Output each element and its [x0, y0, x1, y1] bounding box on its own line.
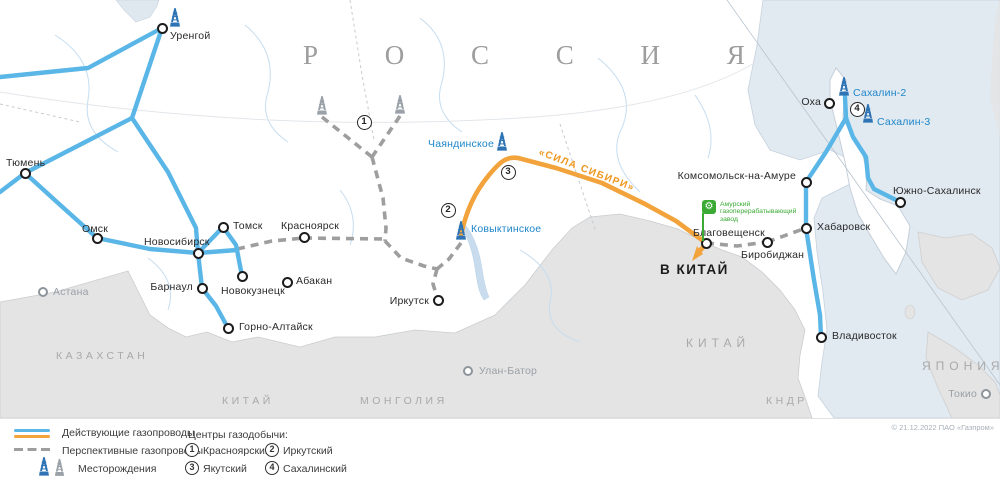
city-marker-novokuznetsk	[237, 271, 248, 282]
city-marker-tyumen	[20, 168, 31, 179]
legend-existing-label: Действующие газопроводы	[62, 428, 195, 439]
city-marker-komsomolsk	[801, 177, 812, 188]
region-label-dprk: КНДР	[766, 396, 808, 407]
city-marker-krasnoyarsk	[299, 232, 310, 243]
region-label-kazakhstan: КАЗАХСТАН	[56, 351, 148, 362]
city-label-tyumen: Тюмень	[6, 158, 45, 169]
city-marker-barnaul	[197, 283, 208, 294]
legend-fields-label: Месторождения	[78, 464, 156, 475]
city-label-khabarovsk: Хабаровск	[817, 222, 870, 233]
city-label-tokyo: Токио	[948, 389, 977, 400]
city-label-komsomolsk: Комсомольск-на-Амуре	[678, 171, 796, 182]
legend-center-2-label: Иркутский	[283, 446, 333, 457]
city-label-novosibirsk: Новосибирск	[144, 237, 210, 248]
city-label-novokuznetsk: Новокузнецк	[221, 286, 285, 297]
gas-plant-label: Амурский газоперерабатывающий завод	[720, 201, 786, 223]
legend-center-4-badge: 4	[265, 461, 279, 475]
legend-center-1-badge: 1	[185, 443, 199, 457]
lake-baikal	[462, 226, 489, 300]
center-marker-2: 2	[441, 203, 456, 218]
field-label-sakhalin3: Сахалин-3	[877, 117, 930, 128]
derrick-chayandinskoye	[497, 132, 507, 151]
city-marker-gorno-altaysk	[223, 323, 234, 334]
city-marker-okha	[824, 98, 835, 109]
region-label-mongolia: МОНГОЛИЯ	[360, 396, 448, 407]
city-marker-astana	[38, 287, 48, 297]
derrick-urengoy	[170, 8, 180, 27]
city-marker-irkutsk	[433, 295, 444, 306]
city-marker-tokyo	[981, 389, 991, 399]
prospective-pipeline-swatch	[14, 448, 50, 451]
field-label-sakhalin2: Сахалин-2	[853, 88, 906, 99]
derrick-gray-east	[395, 95, 405, 114]
legend-derrick-gray-icon	[54, 458, 65, 477]
city-label-omsk: Омск	[82, 224, 108, 235]
city-label-irkutsk: Иркутск	[390, 296, 429, 307]
region-label-china-east: КИТАЙ	[686, 337, 750, 349]
existing-pipeline-swatch	[14, 429, 50, 438]
city-label-ulaanbaatar: Улан-Батор	[479, 366, 537, 377]
city-marker-vladivostok	[816, 332, 827, 343]
city-marker-ulaanbaatar	[463, 366, 473, 376]
plant-flag-pole	[702, 213, 704, 241]
map-canvas: Р О С С И Я КАЗАХСТАН МОНГОЛИЯ КИТАЙ КИТ…	[0, 0, 1000, 418]
city-marker-tomsk	[218, 222, 229, 233]
city-label-barnaul: Барнаул	[150, 282, 193, 293]
city-label-okha: Оха	[801, 97, 821, 108]
city-marker-khabarovsk	[801, 223, 812, 234]
city-label-urengoy: Уренгой	[170, 31, 210, 42]
legend-center-1-label: Красноярский	[203, 446, 271, 457]
legend-center-3-badge: 3	[185, 461, 199, 475]
legend-centers-title: Центры газодобычи:	[188, 430, 288, 441]
field-label-chayandinskoye: Чаяндинское	[428, 139, 494, 150]
city-label-vladivostok: Владивосток	[832, 331, 897, 342]
copyright-note: © 21.12.2022 ПАО «Газпром»	[892, 423, 994, 432]
city-label-birobidzhan: Биробиджан	[741, 250, 804, 261]
to-china-label: В КИТАЙ	[660, 262, 729, 277]
legend-derrick-blue-icon	[38, 456, 50, 477]
region-label-russia: Р О С С И Я	[303, 42, 775, 69]
city-marker-yuzhno-sakhalinsk	[895, 197, 906, 208]
legend-prospective-label: Перспективные газопроводы	[62, 446, 203, 457]
city-label-gorno-altaysk: Горно-Алтайск	[239, 322, 313, 333]
legend-center-3-label: Якутский	[203, 464, 247, 475]
city-marker-novosibirsk	[193, 248, 204, 259]
legend-center-2-badge: 2	[265, 443, 279, 457]
city-label-tomsk: Томск	[233, 221, 263, 232]
field-label-kovyktinskoye: Ковыктинское	[471, 224, 541, 235]
ob-gulf	[116, 0, 159, 22]
center-marker-3: 3	[501, 165, 516, 180]
derrick-gray-west	[317, 96, 327, 115]
legend: Действующие газопроводы Перспективные га…	[0, 418, 1000, 487]
gazprom-pipeline-map: Р О С С И Я КАЗАХСТАН МОНГОЛИЯ КИТАЙ КИТ…	[0, 0, 1000, 487]
city-label-astana: Астана	[53, 287, 89, 298]
region-label-china-sw: КИТАЙ	[222, 396, 274, 407]
center-marker-1: 1	[357, 115, 372, 130]
city-label-krasnoyarsk: Красноярск	[281, 221, 339, 232]
region-label-japan: ЯПОНИЯ	[922, 360, 1000, 372]
city-marker-urengoy	[157, 23, 168, 34]
legend-center-4-label: Сахалинский	[283, 464, 347, 475]
japan-islet	[905, 305, 915, 319]
gas-plant-icon: ⚙	[702, 200, 716, 214]
city-label-abakan: Абакан	[296, 276, 332, 287]
city-label-yuzhno-sakhalinsk: Южно-Сахалинск	[893, 186, 981, 197]
center-marker-4: 4	[850, 102, 865, 117]
